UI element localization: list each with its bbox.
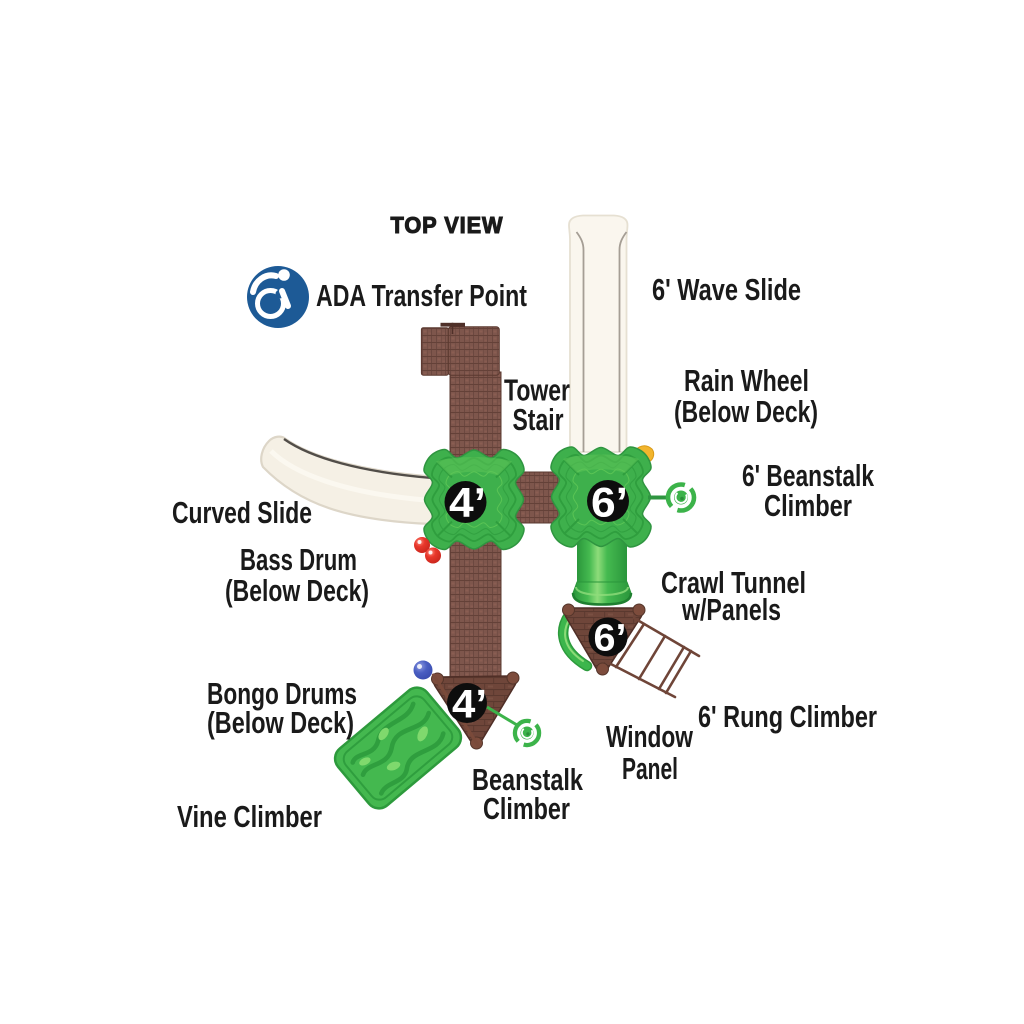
svg-text:Curved Slide: Curved Slide <box>172 495 312 530</box>
svg-text:Stair: Stair <box>513 402 564 437</box>
svg-text:TOP VIEW: TOP VIEW <box>391 212 504 238</box>
svg-text:6' Rung Climber: 6' Rung Climber <box>698 699 877 734</box>
svg-text:ADA Transfer Point: ADA Transfer Point <box>316 278 527 313</box>
svg-text:Bass Drum: Bass Drum <box>240 542 357 577</box>
svg-text:4’: 4’ <box>449 479 486 526</box>
svg-text:(Below Deck): (Below Deck) <box>207 705 354 740</box>
svg-text:w/Panels: w/Panels <box>681 592 781 627</box>
svg-text:6’: 6’ <box>591 479 628 526</box>
svg-text:Rain Wheel: Rain Wheel <box>684 363 809 398</box>
svg-text:Panel: Panel <box>622 751 678 786</box>
svg-text:Climber: Climber <box>764 488 852 523</box>
svg-text:6’: 6’ <box>594 618 627 660</box>
svg-text:Climber: Climber <box>483 791 570 826</box>
svg-text:Window: Window <box>606 719 694 754</box>
svg-text:6' Wave Slide: 6' Wave Slide <box>652 272 801 307</box>
svg-text:4’: 4’ <box>452 683 487 727</box>
svg-text:Vine Climber: Vine Climber <box>177 799 322 834</box>
svg-text:(Below Deck): (Below Deck) <box>674 394 818 429</box>
svg-text:(Below Deck): (Below Deck) <box>225 573 369 608</box>
